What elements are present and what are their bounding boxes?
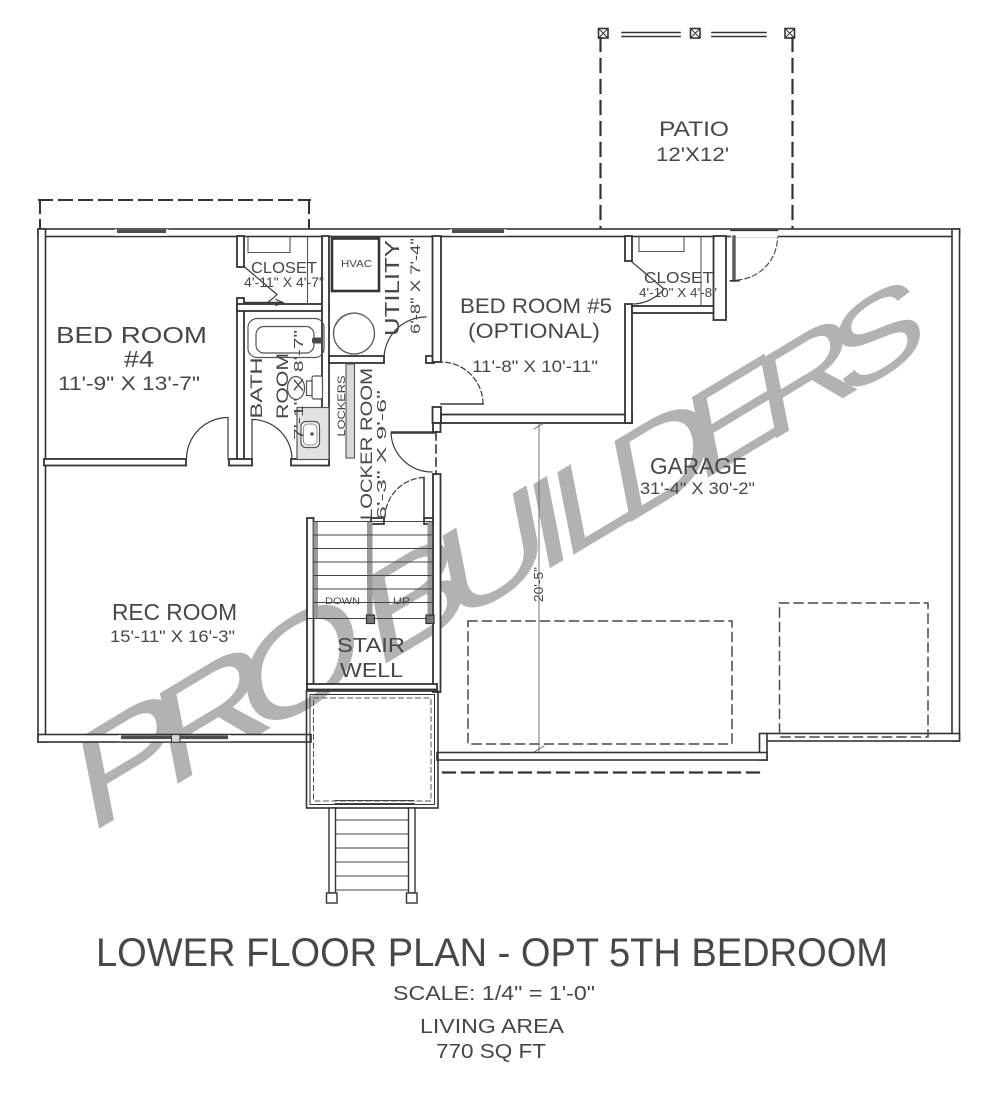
- svg-text:HVAC: HVAC: [341, 258, 372, 270]
- svg-text:#4: #4: [124, 346, 154, 372]
- svg-text:REC ROOM: REC ROOM: [112, 599, 237, 625]
- svg-text:GARAGE: GARAGE: [650, 453, 747, 479]
- svg-text:31'-4" X 30'-2": 31'-4" X 30'-2": [640, 480, 755, 498]
- svg-text:7'-1" X 8'-7": 7'-1" X 8'-7": [292, 330, 306, 440]
- svg-text:11'-9" X 13'-7": 11'-9" X 13'-7": [58, 374, 200, 395]
- svg-text:WELL: WELL: [340, 660, 403, 682]
- svg-text:(OPTIONAL): (OPTIONAL): [468, 320, 600, 343]
- svg-text:ROOM: ROOM: [273, 353, 292, 419]
- svg-text:770 SQ FT: 770 SQ FT: [436, 1041, 546, 1063]
- svg-text:LIVING AREA: LIVING AREA: [420, 1016, 565, 1038]
- svg-text:LOCKERS: LOCKERS: [336, 376, 348, 437]
- svg-text:BED ROOM: BED ROOM: [56, 322, 207, 348]
- svg-text:15'-11" X 16'-3": 15'-11" X 16'-3": [110, 627, 235, 646]
- svg-text:BED ROOM #5: BED ROOM #5: [460, 295, 612, 318]
- svg-text:LOWER FLOOR PLAN - OPT 5TH BED: LOWER FLOOR PLAN - OPT 5TH BEDROOM: [96, 931, 888, 975]
- svg-text:4'-11" X 4'-7": 4'-11" X 4'-7": [244, 275, 324, 290]
- svg-text:SCALE: 1/4" = 1'-0": SCALE: 1/4" = 1'-0": [393, 983, 595, 1005]
- svg-text:6'-8" X 7'-4": 6'-8" X 7'-4": [408, 238, 423, 334]
- svg-text:STAIR: STAIR: [337, 635, 405, 657]
- svg-text:20'-5": 20'-5": [532, 567, 546, 602]
- svg-text:BATH: BATH: [247, 358, 266, 419]
- svg-text:UP: UP: [393, 596, 410, 607]
- svg-text:DOWN: DOWN: [325, 596, 360, 607]
- svg-text:6'-3" X 9'-6": 6'-3" X 9'-6": [374, 389, 389, 520]
- svg-text:PATIO: PATIO: [659, 118, 729, 141]
- svg-text:11'-8" X 10'-11": 11'-8" X 10'-11": [472, 357, 598, 376]
- svg-text:4'-10" X 4'-8": 4'-10" X 4'-8": [639, 285, 717, 300]
- svg-text:UTILITY: UTILITY: [382, 240, 404, 336]
- svg-text:12'X12': 12'X12': [656, 145, 729, 166]
